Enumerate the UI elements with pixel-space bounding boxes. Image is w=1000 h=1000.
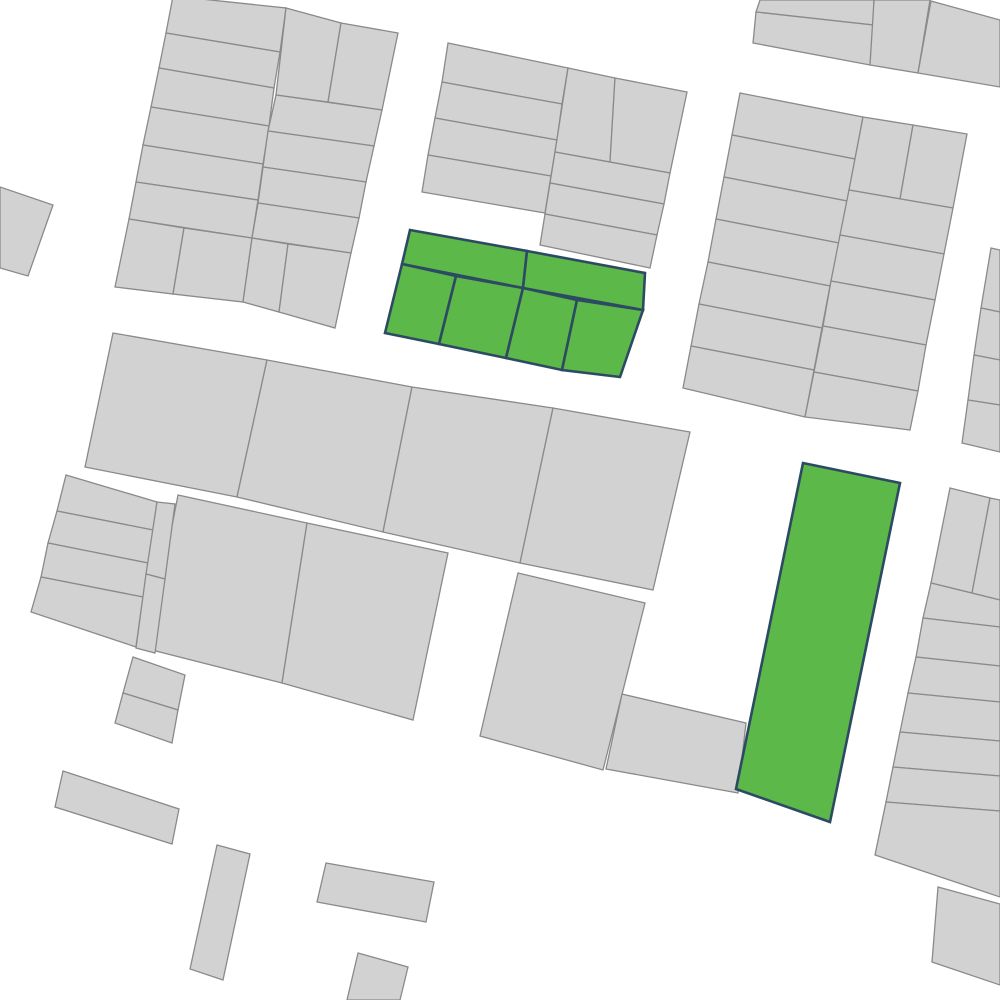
parcel-block-a-left-b1[interactable] <box>115 219 184 294</box>
parcel-east-sliver-s4[interactable] <box>962 400 1000 452</box>
parcel-se-block-bottom[interactable] <box>875 802 1000 897</box>
parcel-block-a-right-b2[interactable] <box>279 244 351 328</box>
parcel-block-ne-top-p2[interactable] <box>918 1 1000 87</box>
parcel-block-a-left-b2[interactable] <box>173 228 252 302</box>
parcel-se-corner[interactable] <box>932 887 1000 985</box>
parcel-south-bar-1[interactable] <box>55 771 179 844</box>
parcel-south-bar-3[interactable] <box>317 863 434 922</box>
parcel-highlight-a-bottom-4[interactable] <box>562 300 643 377</box>
parcel-south-bar-4[interactable] <box>347 953 408 1000</box>
parcel-east-sliver-s1[interactable] <box>981 248 1000 312</box>
parcel-west-edge-1[interactable] <box>0 187 53 276</box>
parcel-highlight-b-strip[interactable] <box>736 463 900 822</box>
map-viewport <box>0 0 1000 1000</box>
parcel-east-sliver-s3[interactable] <box>968 355 1000 405</box>
parcel-east-sliver-s2[interactable] <box>974 308 1000 360</box>
parcel-map[interactable] <box>0 0 1000 1000</box>
parcel-block-b-right-p2[interactable] <box>610 78 687 173</box>
parcel-block-a-right-p2[interactable] <box>328 23 398 110</box>
parcel-south-bar-2[interactable] <box>190 845 250 980</box>
parcel-mid-row1-2[interactable] <box>237 360 412 532</box>
parcel-south-center-ext[interactable] <box>606 694 746 793</box>
parcel-mid-row2-2[interactable] <box>282 523 448 720</box>
parcel-mid-row1-1[interactable] <box>85 333 267 497</box>
